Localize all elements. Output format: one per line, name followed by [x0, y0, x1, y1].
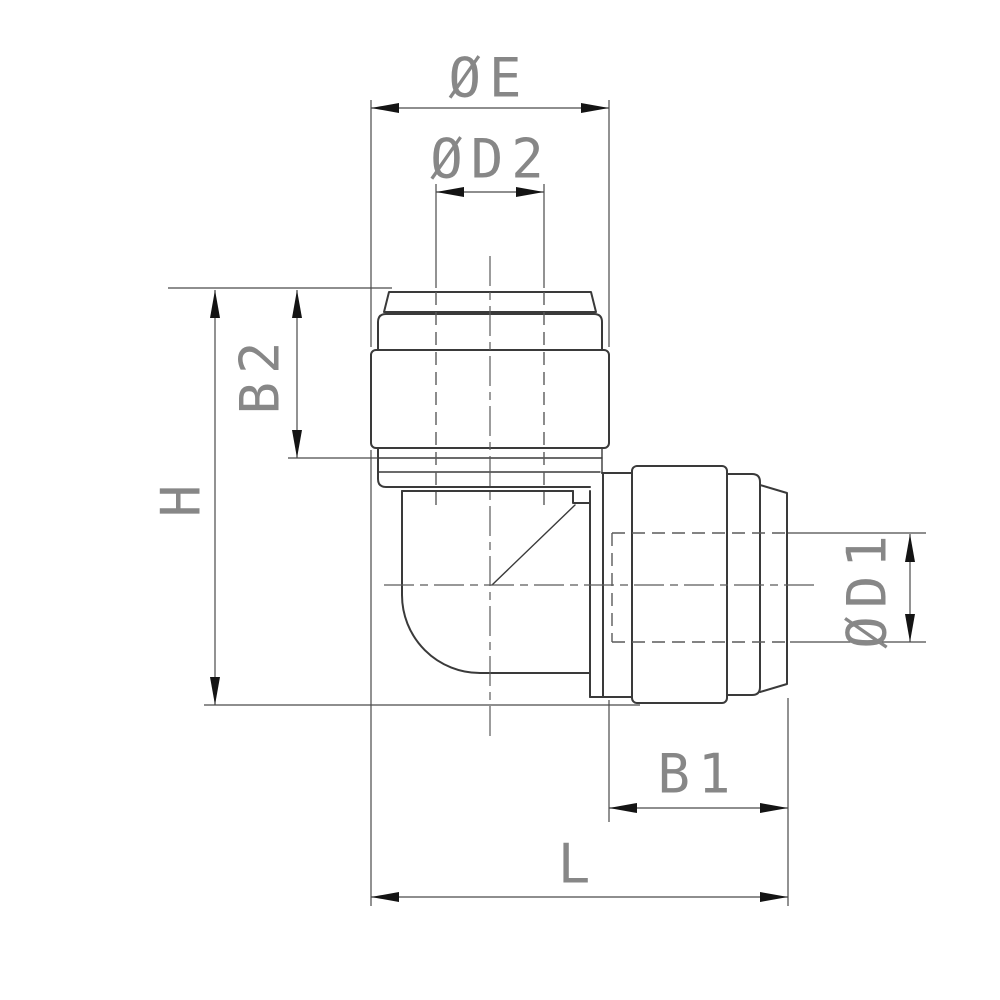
dim-label-dia-d1: ØD1 — [836, 527, 899, 649]
arrowhead-top — [210, 290, 220, 318]
dimension-b1: B1 — [609, 700, 788, 822]
arrowhead-left — [609, 803, 637, 813]
dim-label-l: L — [558, 833, 599, 896]
dim-label-b1: B1 — [657, 743, 738, 806]
elbow-outer-radius — [402, 595, 480, 673]
arrowhead-left — [371, 892, 399, 902]
arrowhead-left — [371, 103, 399, 113]
dimension-dia-d2: ØD2 — [430, 128, 552, 289]
arrowhead-right — [760, 803, 788, 813]
top-port-lower-band — [378, 448, 590, 487]
side-port-collet-cap — [760, 485, 787, 692]
arrowhead-bottom — [210, 677, 220, 705]
elbow-chamfer-diagonal-line — [492, 505, 575, 585]
arrowhead-top — [292, 290, 302, 318]
dimension-dia-e: ØE — [371, 47, 609, 348]
arrowhead-bottom — [905, 614, 915, 642]
dimension-l: L — [371, 450, 788, 906]
arrowhead-top — [905, 534, 915, 562]
hidden-bore-lines — [436, 292, 788, 642]
arrowhead-right — [581, 103, 609, 113]
dim-label-dia-e: ØE — [448, 47, 529, 110]
dim-label-dia-d2: ØD2 — [430, 128, 552, 191]
technical-drawing-canvas: ØE ØD2 B2 H ØD1 — [0, 0, 1000, 1000]
dim-label-b2: B2 — [229, 333, 292, 414]
elbow-body-corner-detail — [573, 491, 590, 503]
arrowhead-right — [760, 892, 788, 902]
arrowhead-bottom — [292, 430, 302, 458]
dimension-dia-d1: ØD1 — [788, 527, 926, 649]
dimension-h: H — [150, 290, 641, 705]
dimension-b2: B2 — [168, 288, 392, 458]
dim-label-h: H — [150, 477, 213, 518]
drawing-page: ØE ØD2 B2 H ØD1 — [0, 0, 1000, 1000]
